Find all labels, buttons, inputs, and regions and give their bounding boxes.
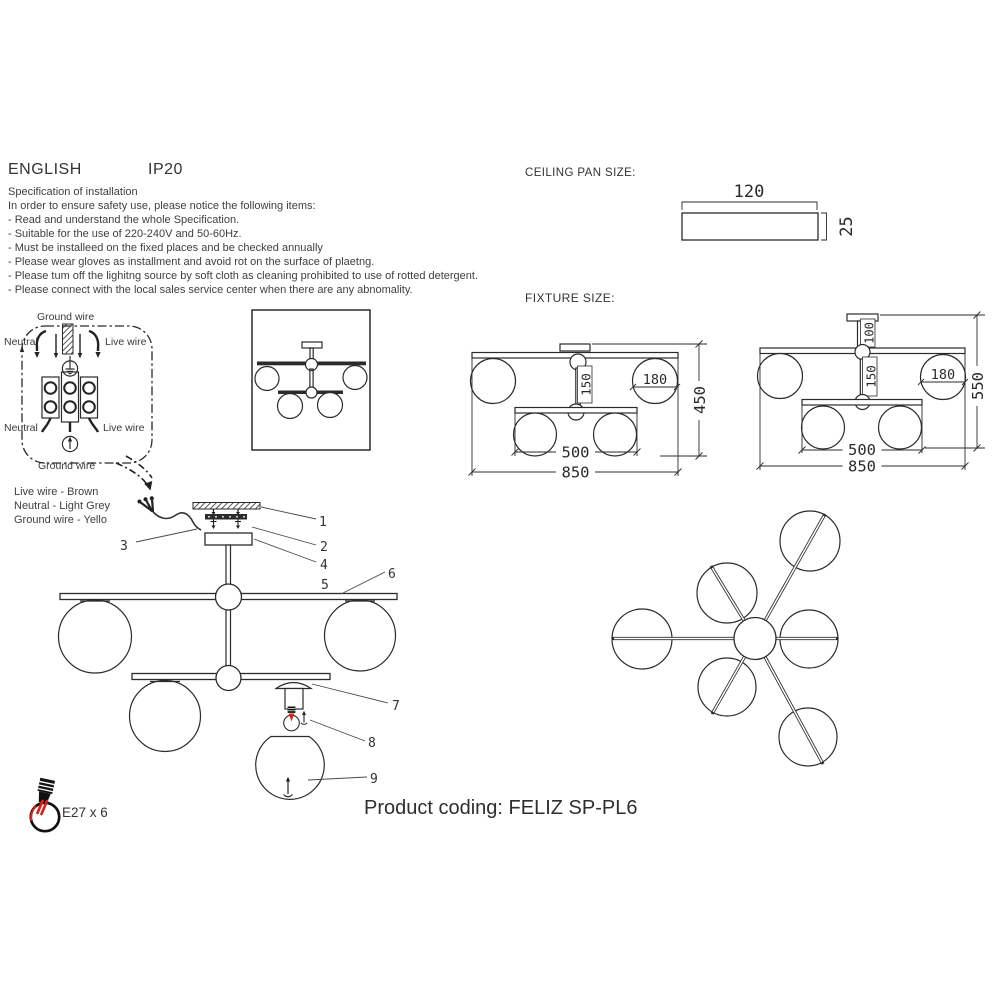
part-number-7: 7 xyxy=(392,699,400,714)
live-wire-bottom-label: Live wire xyxy=(103,422,145,434)
ceiling-pan-height-dim: 25 xyxy=(837,216,857,236)
screw-icon xyxy=(301,711,307,725)
live-wire-top-label: Live wire xyxy=(105,336,147,348)
terminal-block xyxy=(42,372,98,422)
stem-dim: 150 xyxy=(579,373,594,396)
stem-dim-2: 150 xyxy=(864,365,879,388)
fixture-top-view xyxy=(612,511,840,766)
bar-width-dim: 500 xyxy=(562,444,590,462)
glass-globe xyxy=(130,681,201,752)
overall-width-dim-2: 850 xyxy=(848,458,876,476)
ground-wire-bottom-label: Ground wire xyxy=(38,460,95,472)
globe-diameter-dim: 180 xyxy=(643,372,667,388)
ground-conductor xyxy=(63,324,74,354)
neutral-top-label: Neutral xyxy=(4,336,38,348)
fixture-view-side: 100 180 150 500 xyxy=(757,312,988,476)
lower-joint-ball xyxy=(216,666,241,691)
part-number-3: 3 xyxy=(120,539,128,554)
bar-width-dim-2: 500 xyxy=(848,441,876,459)
part-number-8: 8 xyxy=(368,736,376,751)
arms-inner xyxy=(614,516,836,762)
glass-globe xyxy=(325,600,396,671)
neutral-bottom-label: Neutral xyxy=(4,422,38,434)
part-number-4: 4 xyxy=(320,558,328,573)
overall-height-dim: 450 xyxy=(691,386,709,414)
wiring-diagram: Ground wire Neutral Live wire Neutral Li… xyxy=(4,311,152,491)
technical-drawing: 120 25 180 150 xyxy=(0,0,1000,1000)
fixture-preview-box xyxy=(252,310,370,450)
part-number-9: 9 xyxy=(370,772,378,787)
top-stem-dim: 100 xyxy=(863,322,877,344)
installation-spec-page: ENGLISH IP20 Specification of installati… xyxy=(0,0,1000,1000)
globe-diameter-dim-2: 180 xyxy=(931,367,955,383)
supply-wires xyxy=(138,496,202,530)
glass-globe xyxy=(59,600,132,673)
part-number-5: 5 xyxy=(321,578,329,593)
loose-glass-globe xyxy=(256,737,325,800)
upper-stem xyxy=(226,545,231,587)
part-number-2: 2 xyxy=(320,540,328,555)
part-number-6: 6 xyxy=(388,567,396,582)
lower-stem xyxy=(226,610,231,668)
mounting-bracket xyxy=(205,509,247,529)
bulb-icon xyxy=(31,778,59,831)
lamp-socket xyxy=(276,683,311,710)
ground-wire-top-label: Ground wire xyxy=(37,311,94,323)
ceiling-pan-drawing: 120 25 xyxy=(682,182,857,240)
part-number-1: 1 xyxy=(319,515,327,530)
overall-height-dim-2: 550 xyxy=(969,372,987,400)
upper-joint-ball xyxy=(216,584,242,610)
ceiling-plate xyxy=(193,503,260,510)
light-bulb xyxy=(284,707,300,731)
fixture-view-front: 180 150 500 850 xyxy=(469,341,710,482)
exploded-assembly: 1 2 3 4 5 6 7 8 9 xyxy=(59,496,400,799)
ceiling-pan-width-dim: 120 xyxy=(734,182,765,202)
canopy xyxy=(205,533,252,545)
overall-width-dim: 850 xyxy=(562,464,590,482)
center-hub xyxy=(734,618,776,660)
